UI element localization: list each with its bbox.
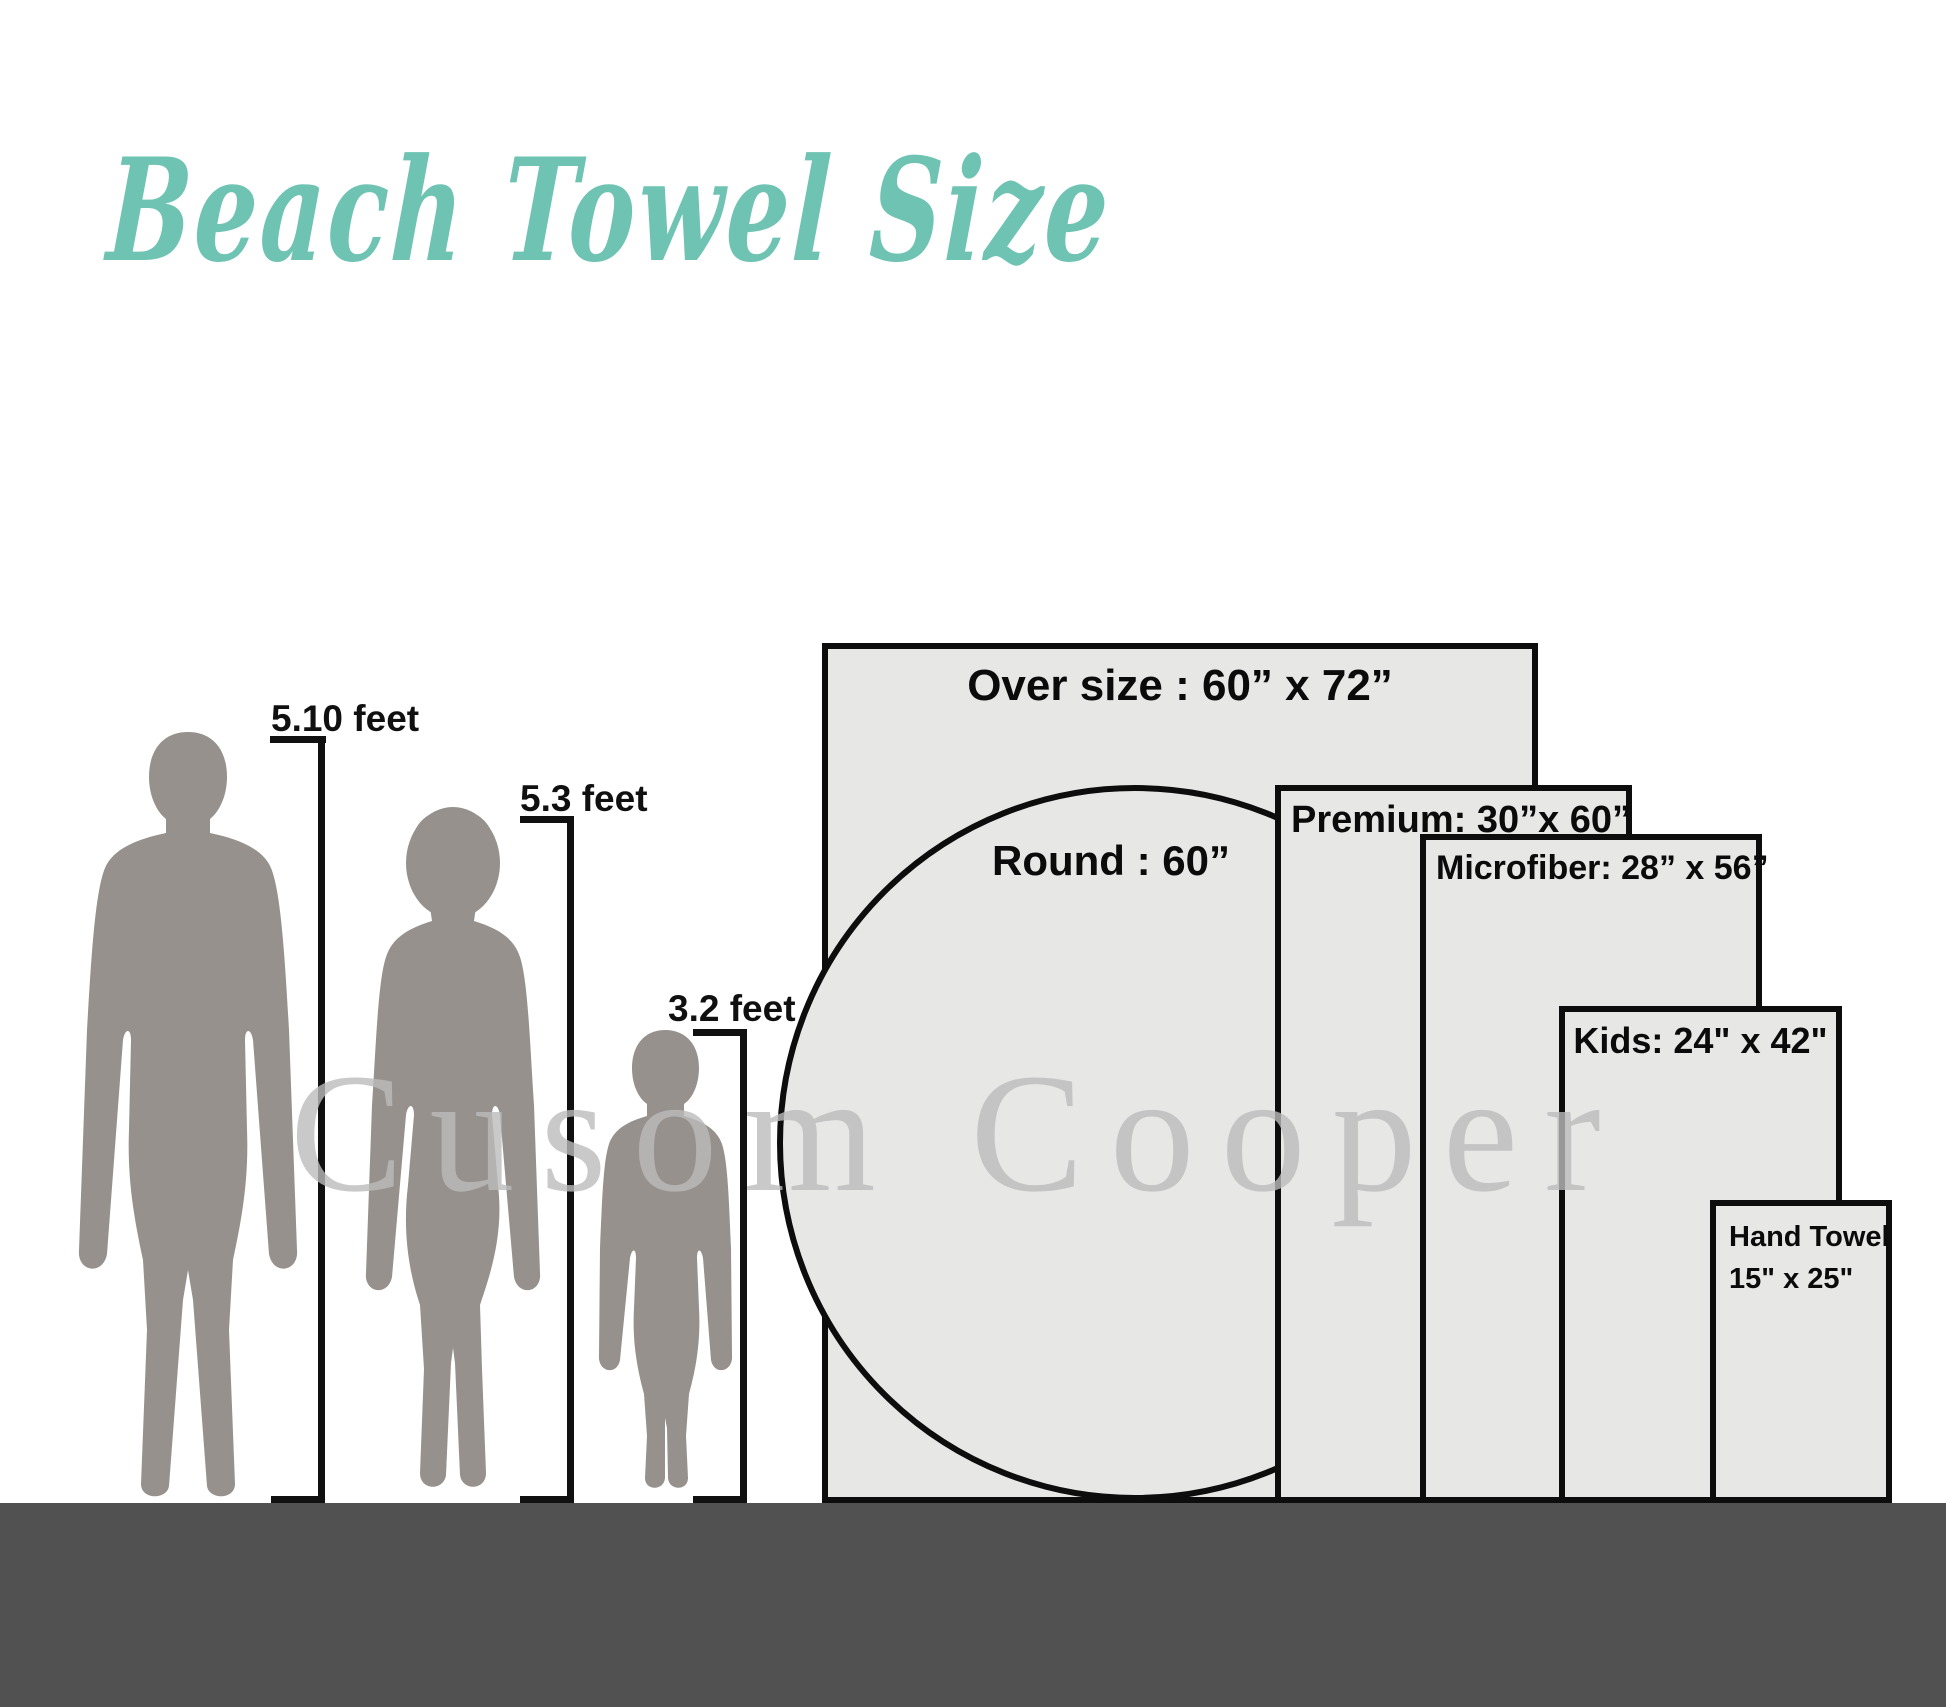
child-ruler-top-tick xyxy=(693,1029,747,1036)
woman-ruler-top-tick xyxy=(520,816,574,823)
kids-towel-label: Kids: 24" x 42" xyxy=(1565,1012,1836,1062)
man-height-label: 5.10 feet xyxy=(271,698,419,740)
woman-silhouette-icon xyxy=(358,803,548,1500)
hand-towel-rect: Hand Towel 15" x 25" xyxy=(1710,1200,1892,1503)
hand-towel-label-line1: Hand Towel xyxy=(1729,1216,1886,1258)
woman-height-label: 5.3 feet xyxy=(520,778,648,820)
man-ruler-bottom-tick xyxy=(271,1496,323,1503)
oversize-towel-label: Over size : 60” x 72” xyxy=(828,649,1532,711)
man-silhouette xyxy=(63,730,313,1500)
child-height-label: 3.2 feet xyxy=(668,988,796,1030)
hand-towel-label-line2: 15" x 25" xyxy=(1729,1258,1886,1300)
infographic-canvas: Beach Towel Size 5.10 feet 5.3 feet 3.2 … xyxy=(0,0,1946,1707)
man-silhouette-icon xyxy=(63,730,313,1500)
woman-silhouette xyxy=(358,803,548,1500)
hand-towel-label: Hand Towel 15" x 25" xyxy=(1716,1206,1886,1300)
woman-ruler-bottom-tick xyxy=(520,1496,572,1503)
microfiber-towel-label: Microfiber: 28” x 56” xyxy=(1426,840,1756,888)
man-ruler-line xyxy=(318,736,325,1503)
woman-ruler-line xyxy=(567,816,574,1503)
ground-bar xyxy=(0,1503,1946,1707)
page-title: Beach Towel Size xyxy=(104,128,1115,294)
child-ruler-bottom-tick xyxy=(693,1496,745,1503)
child-silhouette xyxy=(598,1028,733,1498)
child-silhouette-icon xyxy=(598,1028,733,1498)
child-ruler-line xyxy=(740,1029,747,1503)
